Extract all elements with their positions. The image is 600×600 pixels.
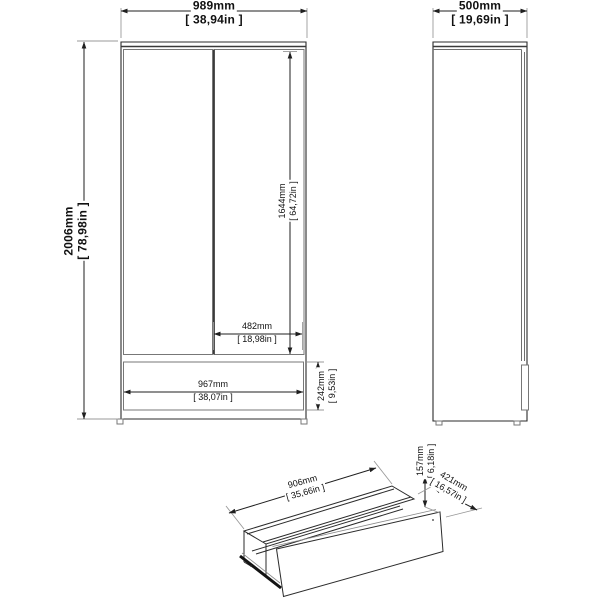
door-height-in-label: [ 64,72in ] bbox=[288, 181, 299, 221]
side-front-foot bbox=[514, 421, 520, 425]
door-width-in-label: [ 18,98in ] bbox=[235, 335, 279, 345]
drawer-screw-hole bbox=[432, 519, 434, 521]
front-width-mm-label: 989mm bbox=[191, 0, 237, 13]
drawer-width-mm-label: 967mm bbox=[196, 380, 230, 390]
front-height-label: 2006mm [ 78,98in ] bbox=[62, 201, 91, 261]
front-left-door bbox=[124, 50, 213, 355]
side-back-foot bbox=[436, 421, 442, 425]
door-height-label: 1644mm [ 64,72in ] bbox=[277, 180, 299, 222]
front-height-mm-label: 2006mm bbox=[62, 202, 76, 260]
drawer-section-height-label: 242mm [ 9,53in ] bbox=[316, 368, 338, 405]
drawer-front-panel bbox=[277, 512, 444, 597]
front-height-in-label: [ 78,98in ] bbox=[76, 202, 90, 260]
drawer-height-mm-label: 157mm bbox=[415, 444, 426, 479]
side-drawer-front-edge bbox=[522, 365, 529, 410]
drawer-width-in-label: [ 38,07in ] bbox=[191, 393, 235, 403]
side-depth-mm-label: 500mm bbox=[457, 0, 503, 13]
front-width-in-label: [ 38,94in ] bbox=[183, 13, 245, 26]
side-depth-in-label: [ 19,69in ] bbox=[449, 13, 511, 26]
drawer-3d-linework bbox=[240, 486, 443, 597]
drawer-section-height-in-label: [ 9,53in ] bbox=[327, 369, 338, 404]
door-height-mm-label: 1644mm bbox=[277, 181, 288, 221]
drawer-section-height-mm-label: 242mm bbox=[316, 369, 327, 404]
door-width-mm-label: 482mm bbox=[240, 322, 274, 332]
front-view-linework bbox=[117, 42, 307, 424]
drawer-screw-hole bbox=[250, 565, 252, 567]
side-view-linework bbox=[433, 42, 529, 425]
drawer-box-top-rim bbox=[244, 486, 414, 544]
side-cabinet-outline bbox=[433, 42, 527, 421]
technical-drawing-canvas: 989mm [ 38,94in ] 500mm [ 19,69in ] 2006… bbox=[0, 0, 600, 600]
front-left-foot bbox=[117, 419, 123, 424]
drawing-linework bbox=[0, 0, 600, 600]
front-right-foot bbox=[301, 419, 307, 424]
drawer-slide-rail bbox=[240, 556, 281, 588]
